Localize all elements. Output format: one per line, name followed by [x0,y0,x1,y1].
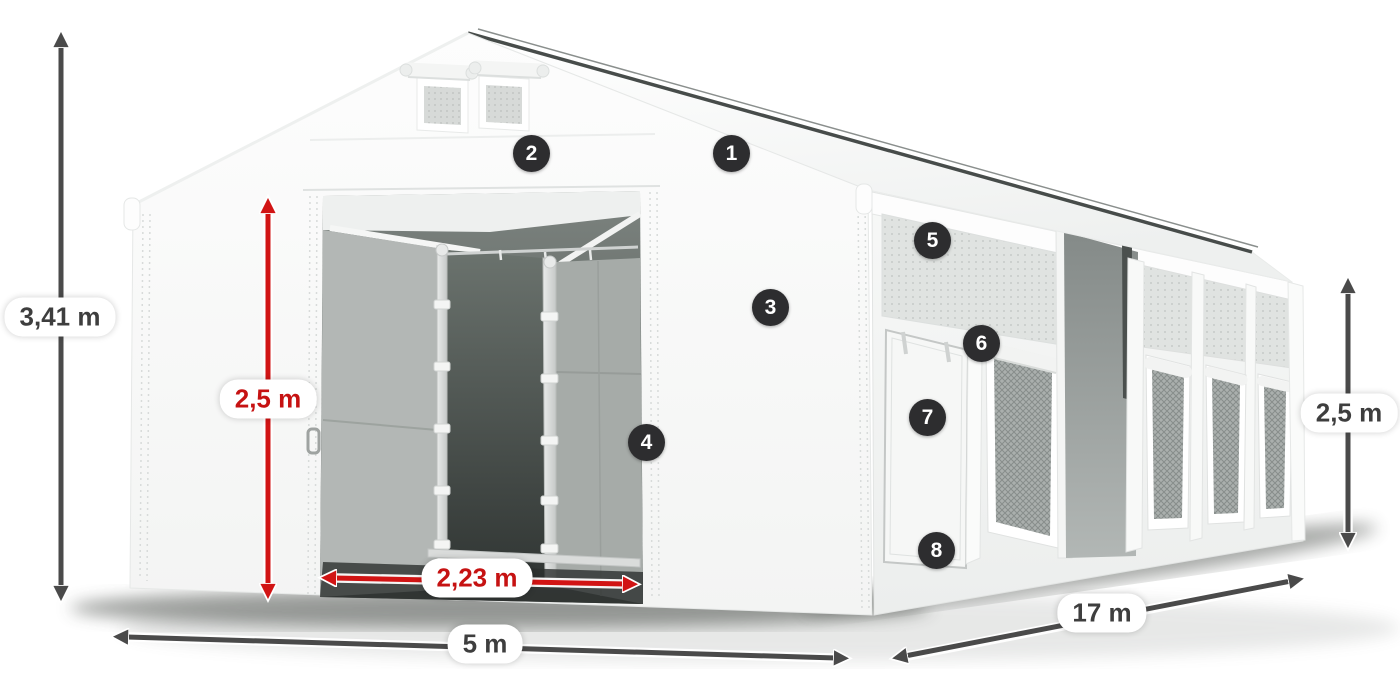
dimension-label-side-height: 2,5 m [1301,394,1398,433]
dimension-label-door-width: 2,23 m [422,559,533,598]
dimension-label-total-height: 3,41 m [5,298,116,337]
callout-badge-2[interactable]: 2 [513,135,550,172]
callout-badge-7[interactable]: 7 [909,399,946,436]
callout-badge-6[interactable]: 6 [963,325,1000,362]
dimension-label-length: 17 m [1057,594,1146,633]
callout-badge-3[interactable]: 3 [752,289,789,326]
callout-badge-8[interactable]: 8 [918,532,955,569]
dimension-label-door-height: 2,5 m [220,380,317,419]
callout-badge-5[interactable]: 5 [914,222,951,259]
dimension-label-front-width: 5 m [448,625,523,664]
front-opening [308,191,643,604]
callout-badge-1[interactable]: 1 [713,135,750,172]
callout-badge-4[interactable]: 4 [628,424,665,461]
tent-diagram: 1 2 3 4 5 6 7 8 3,41 m 2,5 m 2,23 m 5 m … [0,0,1400,700]
tent-illustration [0,0,1400,700]
